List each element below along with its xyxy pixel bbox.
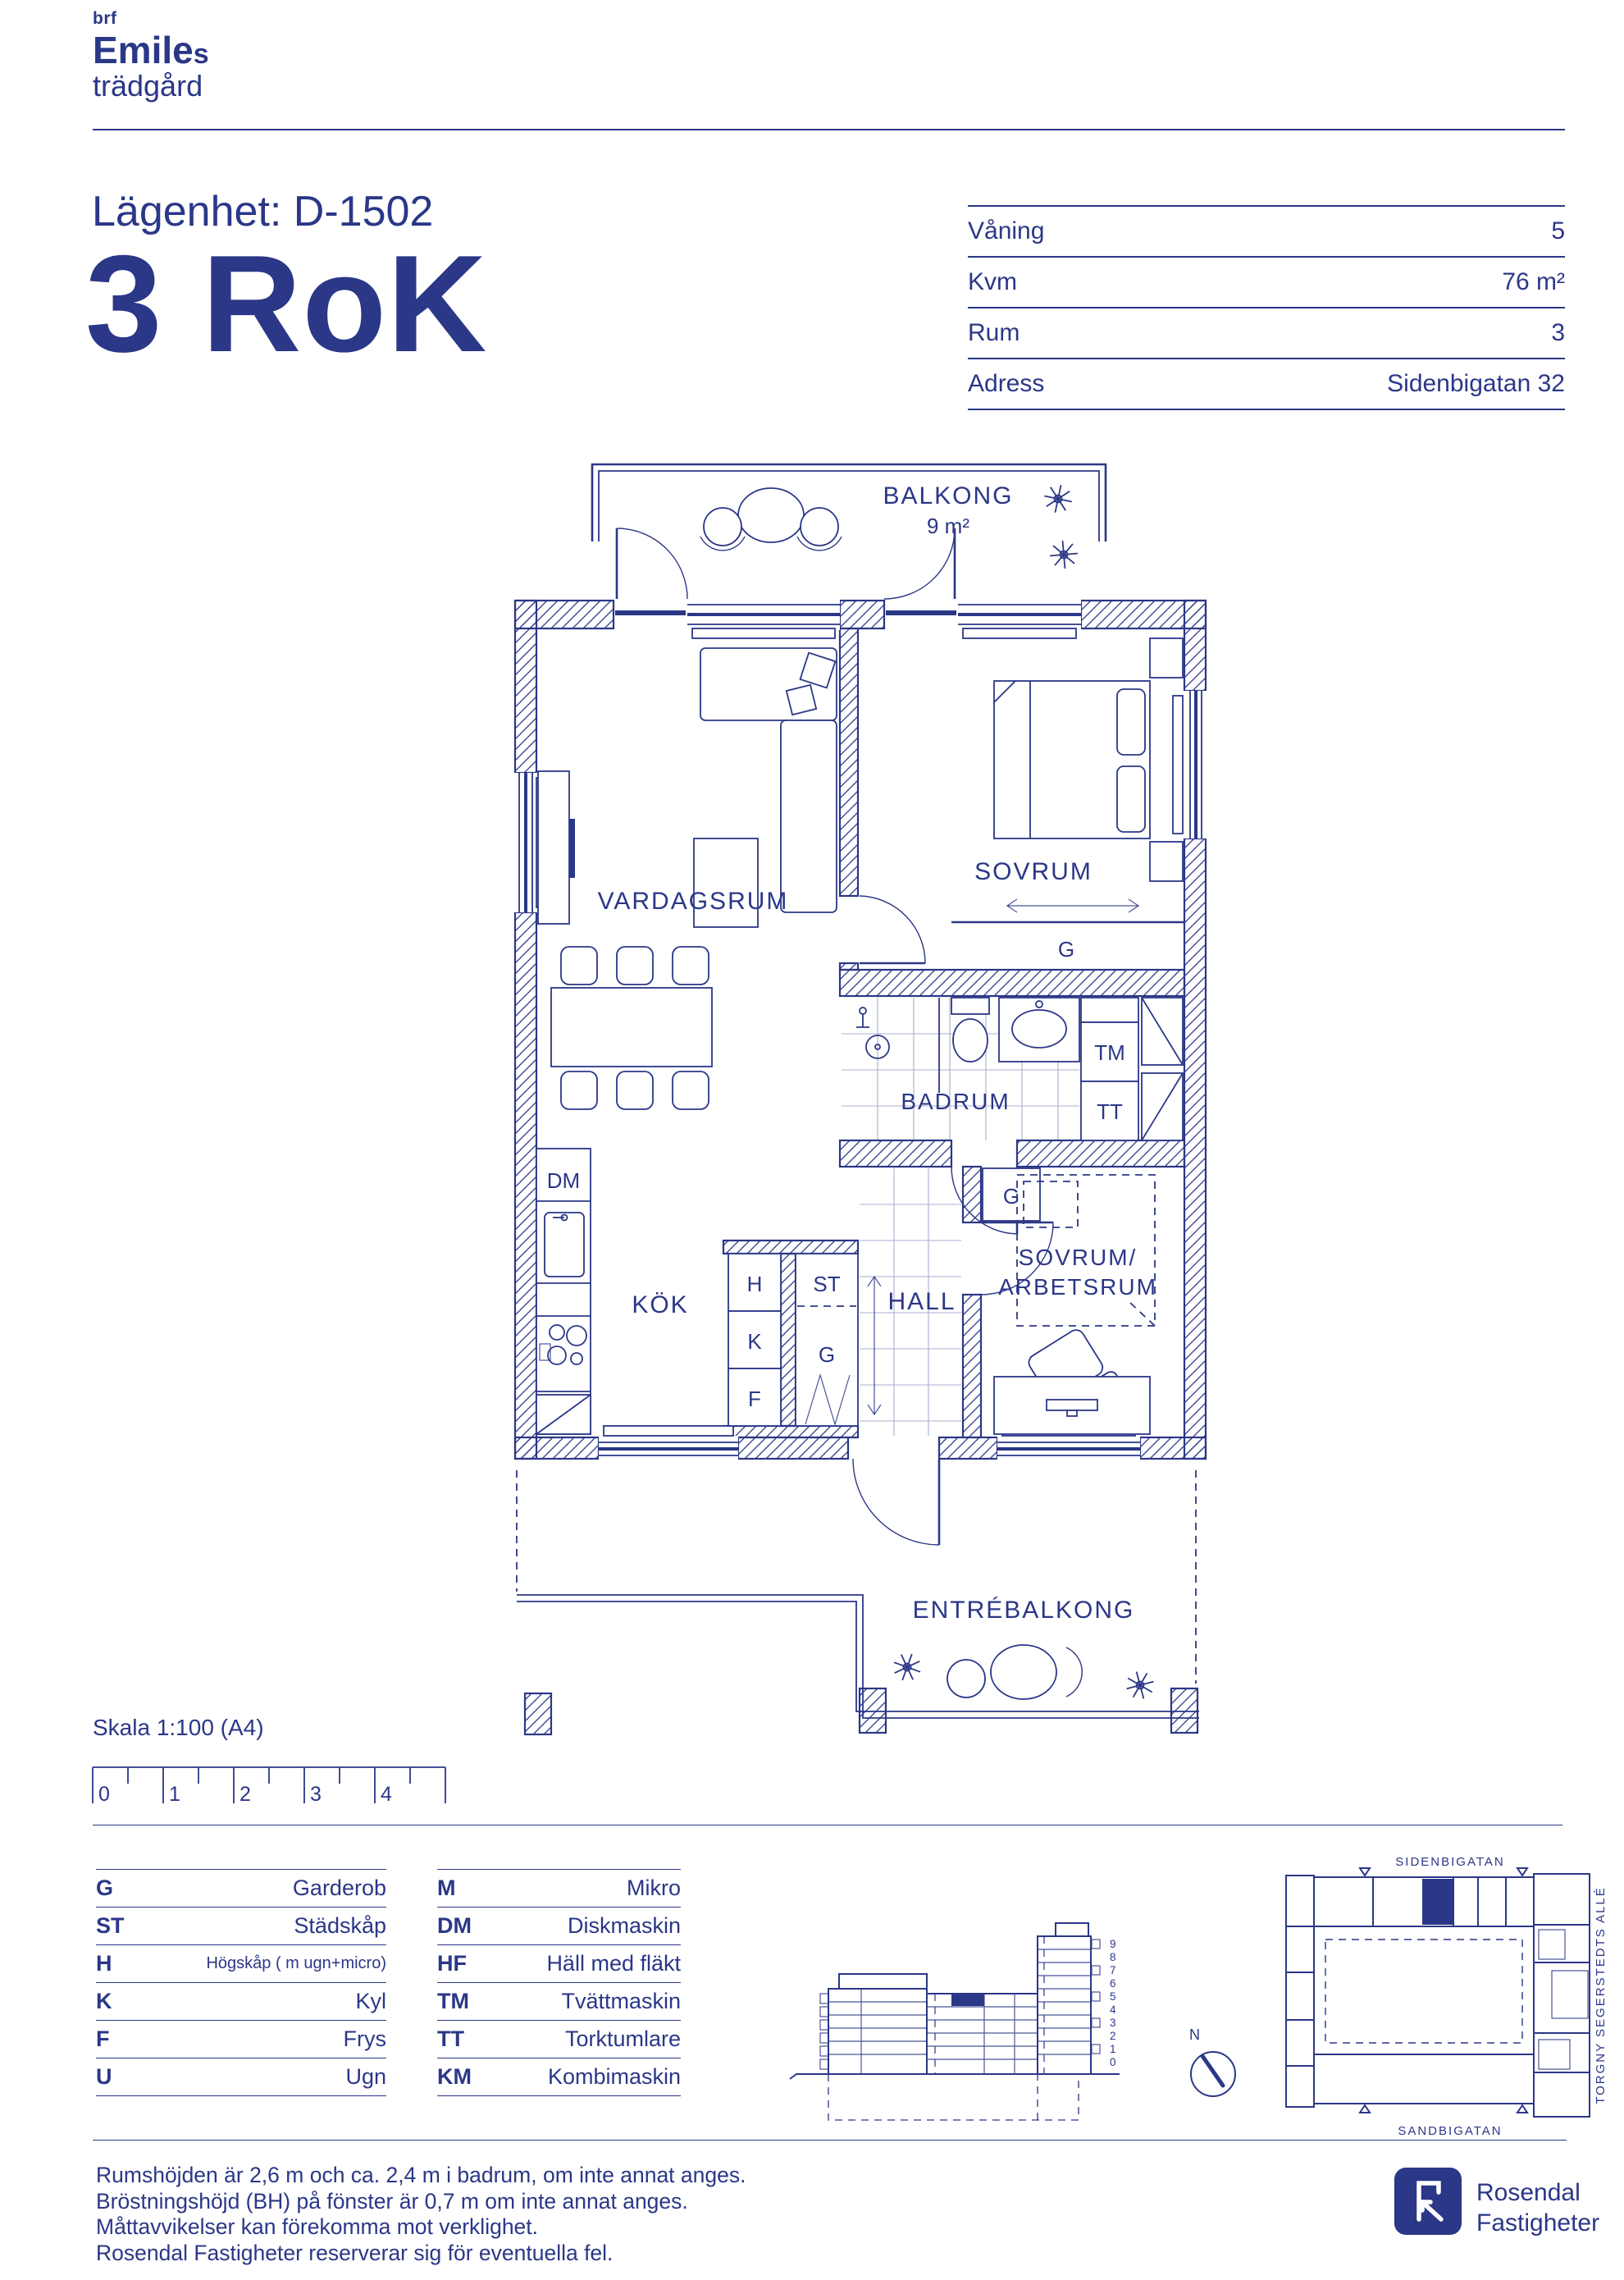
header-divider bbox=[93, 129, 1565, 130]
cabinet-label-st: ST bbox=[813, 1272, 840, 1296]
room-label-hall: HALL bbox=[887, 1288, 956, 1315]
footer-line: Rosendal Fastigheter reserverar sig för … bbox=[96, 2241, 746, 2267]
info-table: Våning5 Kvm76 m² Rum3 AdressSidenbigatan… bbox=[968, 205, 1565, 410]
ruler-tick-label: 3 bbox=[310, 1783, 322, 1806]
legend-row: HHögskåp ( m ugn+micro) bbox=[96, 1944, 386, 1982]
legend-row: TMTvättmaskin bbox=[437, 1982, 681, 2020]
hall: HALL bbox=[860, 1168, 961, 1436]
north-compass: N bbox=[1175, 2020, 1252, 2112]
bedroom: SOVRUM G bbox=[951, 638, 1184, 962]
floor-number: 3 bbox=[1110, 2017, 1116, 2029]
legend-abbr: H bbox=[96, 1951, 112, 1976]
legend-name: Kombimaskin bbox=[548, 2064, 681, 2090]
plant-icon bbox=[1123, 1668, 1157, 1702]
legend-row: KKyl bbox=[96, 1982, 386, 2020]
legend-name: Frys bbox=[344, 2026, 386, 2052]
info-label: Kvm bbox=[968, 268, 1017, 296]
legend-name: Ugn bbox=[345, 2064, 386, 2090]
legend-abbr: DM bbox=[437, 1913, 472, 1939]
legend-name: Tvättmaskin bbox=[561, 1989, 681, 2014]
legend-abbr: G bbox=[96, 1876, 113, 1901]
living-room: VARDAGSRUM bbox=[538, 648, 837, 1109]
brand-logo: brf Emiles trädgård bbox=[93, 10, 209, 101]
footer-divider bbox=[93, 2140, 1567, 2141]
legend-abbr: F bbox=[96, 2026, 110, 2052]
legend-table-2: MMikro DMDiskmaskin HFHäll med fläkt TMT… bbox=[437, 1869, 681, 2096]
legend-name: Kyl bbox=[355, 1989, 386, 2014]
room-label-entry-balcony: ENTRÉBALKONG bbox=[913, 1597, 1135, 1624]
floor-number: 0 bbox=[1110, 2056, 1116, 2068]
rosendal-logo-icon bbox=[1394, 2168, 1462, 2235]
entrance-marker-icon bbox=[1360, 1868, 1527, 1876]
footer-disclaimer: Rumshöjden är 2,6 m och ca. 2,4 m i badr… bbox=[96, 2163, 746, 2266]
floor-number: 1 bbox=[1110, 2043, 1116, 2055]
legend-abbr: TM bbox=[437, 1989, 469, 2014]
site-plan: SIDENBIGATAN SANDBIGATAN TORGNY SEGERSTE… bbox=[1263, 1851, 1616, 2140]
dishwasher-label: DM bbox=[547, 1168, 580, 1193]
brand-name-main: Emile bbox=[93, 29, 194, 71]
apartment-marker bbox=[951, 1994, 984, 2006]
floor-number: 8 bbox=[1110, 1951, 1116, 1963]
room-label-bedroom2-line1: SOVRUM/ bbox=[1019, 1245, 1138, 1270]
legend-row: DMDiskmaskin bbox=[437, 1907, 681, 1944]
apartment-marker bbox=[1422, 1879, 1453, 1925]
legend-table-1: GGarderob STStädskåp HHögskåp ( m ugn+mi… bbox=[96, 1869, 386, 2096]
info-label: Rum bbox=[968, 319, 1020, 347]
cabinet-label-f: F bbox=[748, 1387, 761, 1411]
cabinet-label-g: G bbox=[819, 1342, 835, 1367]
legend-name: Städskåp bbox=[294, 1913, 386, 1939]
floor-plan: BALKONG 9 m² bbox=[492, 453, 1230, 1774]
cabinet-label-h: H bbox=[747, 1272, 763, 1296]
room-label-balcony: BALKONG bbox=[883, 482, 1013, 509]
footer-line: Måttavvikelser kan förekomma mot verklig… bbox=[96, 2214, 746, 2241]
room-label-living: VARDAGSRUM bbox=[598, 888, 789, 915]
scale-ruler: 0 1 2 3 4 bbox=[89, 1762, 466, 1812]
footer-line: Bröstningshöjd (BH) på fönster är 0,7 m … bbox=[96, 2189, 746, 2215]
legend-row: KMKombimaskin bbox=[437, 2058, 681, 2095]
section-divider bbox=[93, 1825, 1562, 1825]
floor-number: 5 bbox=[1110, 1990, 1116, 2003]
legend-row: GGarderob bbox=[96, 1869, 386, 1907]
company-name-line1: Rosendal bbox=[1476, 2177, 1599, 2208]
rok-title: 3 RoK bbox=[85, 235, 487, 372]
plant-icon bbox=[1042, 482, 1074, 515]
info-value: 5 bbox=[1551, 217, 1565, 245]
floor-number: 7 bbox=[1110, 1964, 1116, 1976]
plant-icon bbox=[1044, 535, 1083, 574]
legend-name: Högskåp ( m ugn+micro) bbox=[206, 1954, 386, 1973]
street-label-bottom: SANDBIGATAN bbox=[1398, 2124, 1502, 2138]
legend-name: Garderob bbox=[293, 1876, 386, 1901]
entry-balcony: ENTRÉBALKONG bbox=[517, 1470, 1199, 1734]
street-label-top: SIDENBIGATAN bbox=[1395, 1855, 1504, 1869]
legend-abbr: ST bbox=[96, 1913, 125, 1939]
ruler-tick-label: 1 bbox=[169, 1783, 180, 1806]
bedroom2: G SOVRUM/ ARBETSRUM bbox=[983, 1168, 1157, 1434]
floor-number: 6 bbox=[1110, 1977, 1116, 1990]
info-label: Våning bbox=[968, 217, 1044, 245]
site-drawing bbox=[1286, 1868, 1590, 2117]
room-label-bedroom: SOVRUM bbox=[974, 858, 1093, 885]
table-row: AdressSidenbigatan 32 bbox=[968, 358, 1565, 409]
info-value: Sidenbigatan 32 bbox=[1387, 370, 1565, 398]
wardrobe-label: G bbox=[1058, 937, 1074, 962]
scale-label: Skala 1:100 (A4) bbox=[93, 1715, 264, 1741]
room-label-bathroom: BADRUM bbox=[901, 1089, 1010, 1114]
table-row: Rum3 bbox=[968, 307, 1565, 358]
building-elevation: 9 8 7 6 5 4 3 2 1 0 bbox=[783, 1879, 1136, 2133]
company-name: Rosendal Fastigheter bbox=[1476, 2177, 1599, 2238]
legend-abbr: M bbox=[437, 1876, 456, 1901]
legend-name: Diskmaskin bbox=[568, 1913, 681, 1939]
bathroom: BADRUM TM TT bbox=[842, 998, 1183, 1140]
north-label: N bbox=[1189, 2026, 1200, 2043]
info-label: Adress bbox=[968, 370, 1044, 398]
brand-name-suffix: s bbox=[194, 39, 209, 70]
legend-abbr: TT bbox=[437, 2026, 464, 2052]
company-name-line2: Fastigheter bbox=[1476, 2208, 1599, 2238]
floor-number: 2 bbox=[1110, 2030, 1116, 2042]
legend-name: Torktumlare bbox=[565, 2026, 681, 2052]
brand-brf: brf bbox=[93, 10, 209, 27]
washer-label: TM bbox=[1094, 1040, 1125, 1065]
footer-line: Rumshöjden är 2,6 m och ca. 2,4 m i badr… bbox=[96, 2163, 746, 2189]
legend-abbr: K bbox=[96, 1989, 112, 2014]
legend-abbr: HF bbox=[437, 1951, 467, 1976]
entrance-marker-icon bbox=[1360, 2105, 1527, 2113]
legend-row: TTTorktumlare bbox=[437, 2020, 681, 2058]
elevation-floor-numbers: 9 8 7 6 5 4 3 2 1 0 bbox=[1110, 1938, 1116, 2068]
legend-name: Häll med fläkt bbox=[546, 1951, 681, 1976]
balcony-top: BALKONG 9 m² bbox=[592, 464, 1106, 574]
brand-name: Emiles bbox=[93, 31, 209, 69]
table-row: Våning5 bbox=[968, 205, 1565, 256]
info-value: 76 m² bbox=[1502, 268, 1565, 296]
street-label-right: TORGNY SEGERSTEDTS ALLÉ bbox=[1594, 1886, 1608, 2104]
room-label-bedroom2-line2: ARBETSRUM bbox=[998, 1274, 1157, 1300]
floor-number: 9 bbox=[1110, 1938, 1116, 1950]
ruler-tick-label: 4 bbox=[381, 1783, 392, 1806]
legend-row: MMikro bbox=[437, 1869, 681, 1907]
legend-abbr: U bbox=[96, 2064, 112, 2090]
legend-row: UUgn bbox=[96, 2058, 386, 2095]
cabinet-label-k: K bbox=[747, 1329, 762, 1354]
legend-row: HFHäll med fläkt bbox=[437, 1944, 681, 1982]
compass-needle-icon bbox=[1202, 2056, 1223, 2086]
ruler-tick-label: 0 bbox=[98, 1783, 110, 1806]
ruler-tick-label: 2 bbox=[239, 1783, 251, 1806]
floor-number: 4 bbox=[1110, 2004, 1116, 2016]
balcony-area-label: 9 m² bbox=[927, 514, 969, 538]
plant-icon bbox=[889, 1649, 925, 1685]
legend-row: STStädskåp bbox=[96, 1907, 386, 1944]
kitchen: DM KÖK bbox=[536, 1149, 689, 1434]
elevation-drawing bbox=[790, 1923, 1120, 2120]
brand-sub: trädgård bbox=[93, 71, 209, 101]
table-row: Kvm76 m² bbox=[968, 256, 1565, 307]
legend-abbr: KM bbox=[437, 2064, 472, 2090]
legend-row: FFrys bbox=[96, 2020, 386, 2058]
room-label-kitchen: KÖK bbox=[632, 1291, 688, 1318]
legend-name: Mikro bbox=[627, 1876, 681, 1901]
dryer-label: TT bbox=[1097, 1099, 1123, 1124]
info-value: 3 bbox=[1551, 319, 1565, 347]
